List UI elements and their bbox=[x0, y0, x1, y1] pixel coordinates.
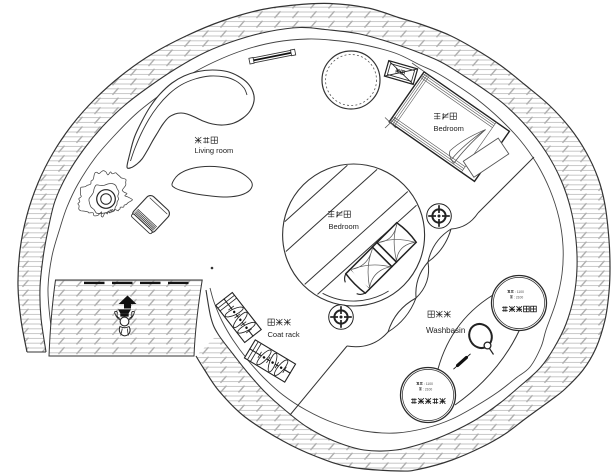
svg-text:Washbasin: Washbasin bbox=[426, 326, 465, 335]
svg-text:Bedroom: Bedroom bbox=[434, 124, 464, 133]
svg-text:Bedroom: Bedroom bbox=[329, 222, 359, 231]
svg-text:Coat rack: Coat rack bbox=[268, 330, 300, 339]
svg-text:: 2100: : 2100 bbox=[514, 295, 523, 299]
svg-text:Living room: Living room bbox=[195, 146, 234, 155]
svg-text:: 1100: : 1100 bbox=[515, 290, 524, 294]
svg-text:: 1100: : 1100 bbox=[424, 382, 433, 386]
svg-text:: 2100: : 2100 bbox=[423, 387, 432, 391]
